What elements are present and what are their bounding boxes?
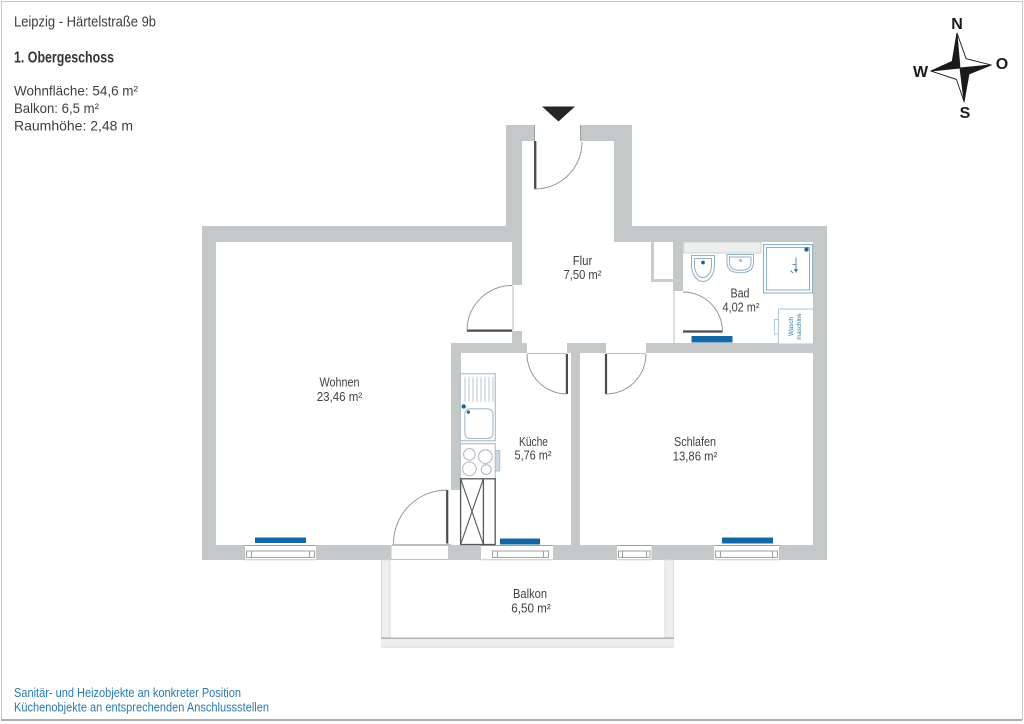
svg-text:Waschmaschine: Waschmaschine: [788, 313, 803, 340]
svg-text:Schlafen: Schlafen: [674, 434, 716, 449]
svg-text:Bad: Bad: [731, 286, 750, 301]
svg-text:4,02 m²: 4,02 m²: [723, 300, 761, 315]
svg-text:6,50 m²: 6,50 m²: [511, 601, 551, 616]
svg-text:Balkon: Balkon: [513, 586, 547, 601]
svg-text:Flur: Flur: [573, 253, 593, 268]
svg-text:Wohnen: Wohnen: [320, 375, 360, 390]
svg-text:13,86 m²: 13,86 m²: [673, 449, 718, 464]
svg-text:7,50 m²: 7,50 m²: [564, 267, 603, 282]
svg-text:5,76 m²: 5,76 m²: [515, 448, 553, 463]
svg-text:23,46 m²: 23,46 m²: [317, 389, 363, 404]
